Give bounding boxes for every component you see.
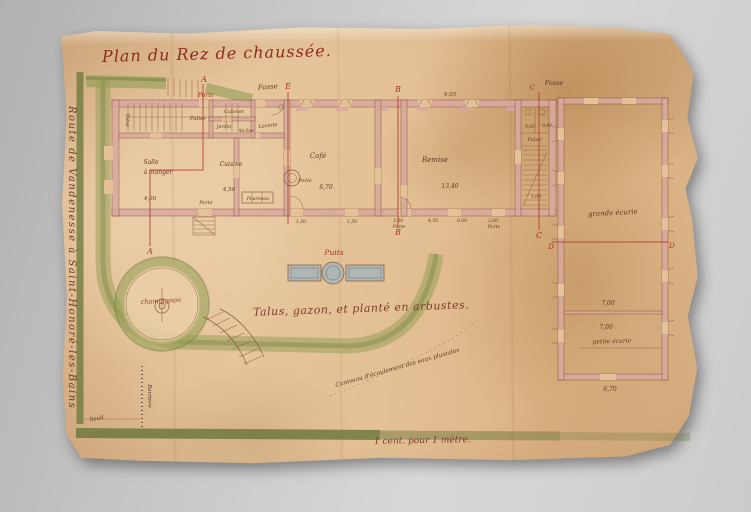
porte-label-cuisine: Porte bbox=[198, 200, 213, 206]
margin-road-note: Route de Vandenesse à Saint-Honoré-les-B… bbox=[66, 106, 77, 409]
alcove-label: Alcôve bbox=[237, 127, 254, 134]
staircase-right bbox=[521, 108, 549, 206]
cafe-label: Café bbox=[310, 152, 326, 160]
salle-dim: 4,00 bbox=[143, 196, 157, 202]
grande-ecurie-label: grande écurie bbox=[588, 208, 638, 219]
section-d-left: D bbox=[547, 243, 554, 251]
stable-wall-north bbox=[558, 98, 668, 104]
stable-partition bbox=[564, 311, 662, 314]
remise-top-dim: 9,05 bbox=[444, 92, 457, 98]
scale-note: 1 cent. pour 1 mètre. bbox=[374, 435, 471, 447]
plan-labels: APorteAEBBCCDDPuitschampignonFosseFosseP… bbox=[89, 75, 675, 423]
laverie-label: Laverie bbox=[257, 122, 278, 130]
remise-door-dim-3: 0,60 bbox=[457, 218, 467, 224]
barriere-label: Barrière bbox=[146, 383, 153, 408]
remise-porte-label-2: Porte bbox=[487, 224, 501, 230]
poele-label: Poêle bbox=[297, 177, 312, 184]
cafe-dim: 6,70 bbox=[319, 184, 333, 191]
section-d-right: D bbox=[668, 242, 675, 250]
remise-dim: 13,40 bbox=[441, 183, 458, 190]
remise-label: Remise bbox=[421, 156, 448, 164]
section-a-top: A bbox=[200, 75, 207, 84]
cuisine-dim: 4,50 bbox=[222, 187, 236, 193]
ecurie-dim-1: 7,00 bbox=[601, 300, 615, 307]
trough-left bbox=[288, 265, 321, 281]
stair-dim-2: 0,40 bbox=[542, 124, 552, 129]
palier-label-left: Palier bbox=[189, 116, 207, 122]
photo-background: APorteAEBBCCDDPuitschampignonFosseFosseP… bbox=[0, 0, 751, 512]
wall-west bbox=[112, 100, 119, 216]
stair-dim-1: 0,60 bbox=[525, 125, 535, 130]
stair-dim-3: 1,00 bbox=[531, 195, 541, 200]
west-bay-1 bbox=[104, 146, 113, 160]
talus-wall-label: Talus bbox=[124, 113, 130, 127]
section-e-top: E bbox=[284, 82, 291, 91]
section-a-bottom: A bbox=[146, 247, 153, 256]
trough-right bbox=[346, 265, 384, 281]
west-bay-2 bbox=[104, 180, 113, 194]
well-group bbox=[288, 262, 384, 284]
stable-wall-east bbox=[662, 98, 668, 380]
remise-door-dim-4: 3,00 bbox=[488, 218, 498, 224]
cafe-door-dim-2: 1,50 bbox=[347, 219, 357, 225]
exterior-stair bbox=[193, 217, 215, 235]
fourneau-label: Fourneau bbox=[246, 196, 269, 202]
cafe-door-dim-1: 1,50 bbox=[296, 219, 306, 225]
section-c-bottom: C bbox=[536, 231, 542, 240]
a-manger-label: à manger bbox=[144, 169, 174, 176]
wall-south bbox=[112, 209, 556, 216]
seuil-label: Seuil bbox=[89, 415, 104, 423]
jardin-label: Jardin bbox=[216, 124, 232, 130]
cuisine-label: Cuisine bbox=[220, 161, 243, 168]
remise-porte-label-1: Porte bbox=[392, 224, 406, 230]
palier-label-right: Palier bbox=[527, 137, 543, 143]
puits-label: Puits bbox=[323, 248, 343, 257]
well-circle bbox=[322, 262, 344, 284]
section-b-top: B bbox=[394, 85, 401, 94]
cabinet-label: Cabinet bbox=[224, 109, 245, 115]
fosse-label-left: Fosse bbox=[257, 82, 279, 92]
remise-door-dim-2: 4,50 bbox=[427, 218, 438, 224]
floor-plan-drawing: APorteAEBBCCDDPuitschampignonFosseFosseP… bbox=[0, 0, 751, 512]
fosse-label-right: Fosse bbox=[544, 79, 564, 87]
remise-door-dim-1: 3,00 bbox=[393, 218, 403, 224]
petite-ecurie-dim: 6,70 bbox=[603, 386, 617, 393]
section-c-top: C bbox=[529, 84, 535, 92]
hedge-steps-hatch bbox=[168, 78, 198, 98]
garden-hedges bbox=[76, 72, 690, 437]
porte-red-label: Porte bbox=[197, 92, 215, 99]
petite-ecurie-label: petite écurie bbox=[592, 337, 631, 345]
wall-north bbox=[112, 100, 556, 107]
ecurie-dim-2: 7,00 bbox=[599, 324, 613, 331]
wall-east bbox=[549, 100, 556, 216]
salle-label: Salle bbox=[143, 159, 159, 166]
main-building bbox=[104, 100, 556, 235]
